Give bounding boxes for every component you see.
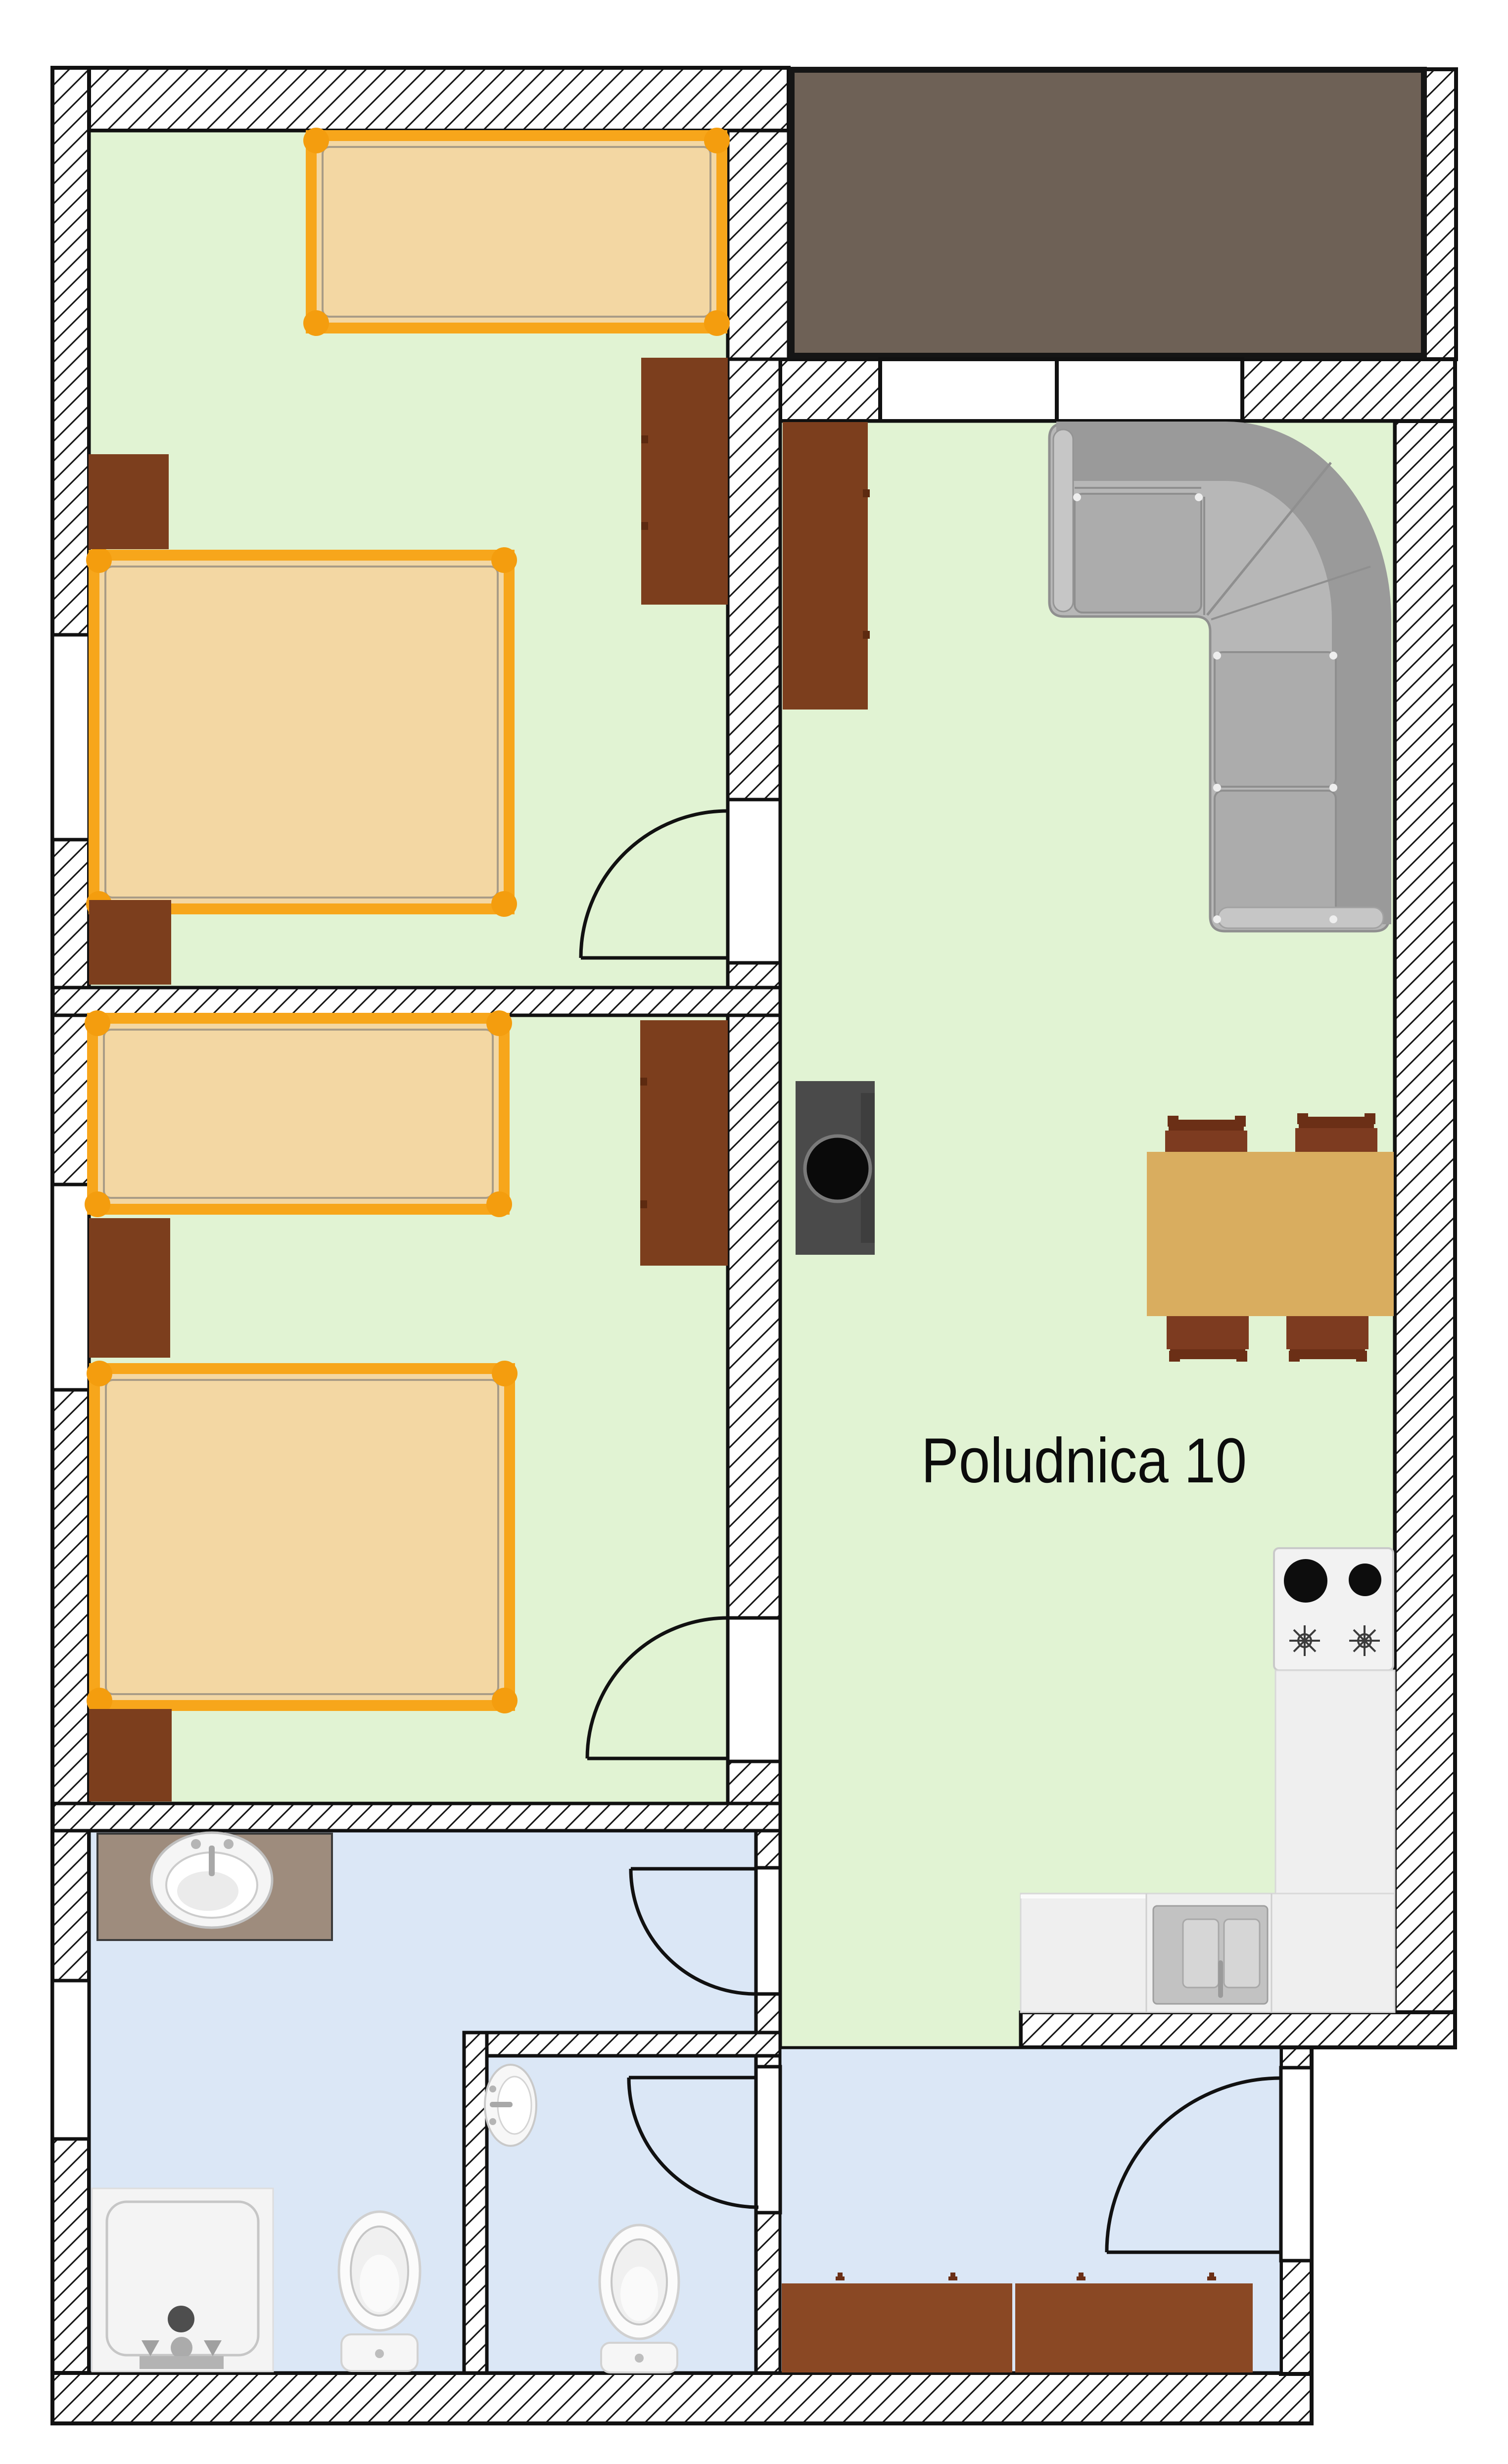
svg-text:Poludnica 10: Poludnica 10 [921, 1425, 1247, 1496]
